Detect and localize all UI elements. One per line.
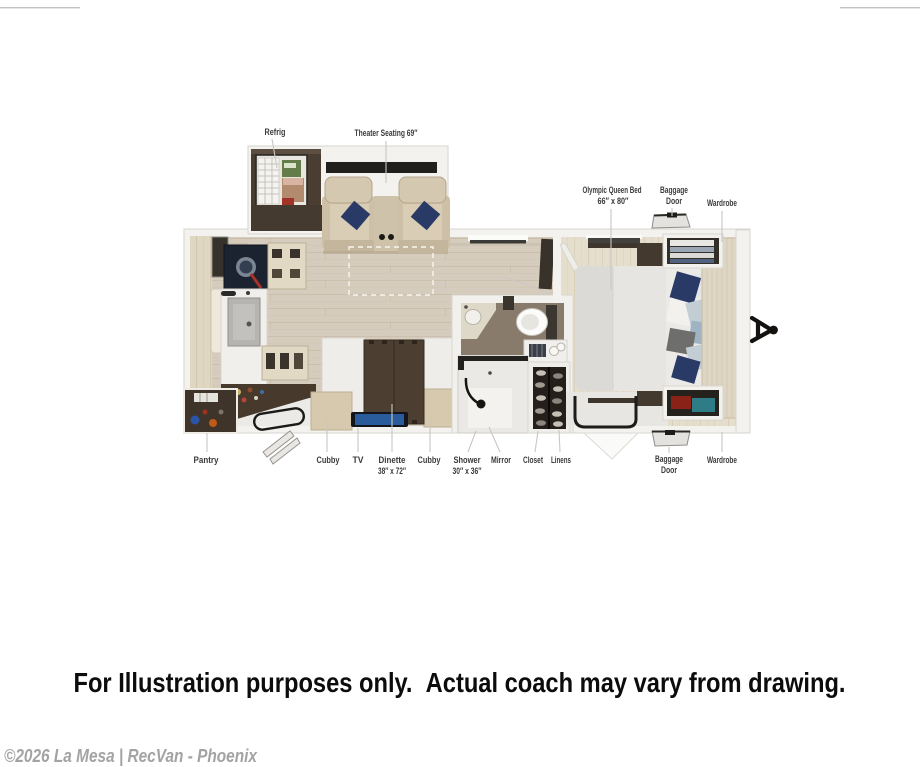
svg-text:©2026 La Mesa | RecVan - Phoen: ©2026 La Mesa | RecVan - Phoenix: [4, 746, 258, 766]
svg-text:Baggage: Baggage: [655, 454, 683, 464]
svg-text:Door: Door: [661, 465, 677, 475]
svg-text:38″ x 72″: 38″ x 72″: [378, 466, 406, 476]
svg-text:Cubby: Cubby: [418, 455, 441, 465]
svg-text:Mirror: Mirror: [491, 455, 511, 465]
svg-text:For Illustration purposes only: For Illustration purposes only. Actual c…: [74, 667, 846, 698]
svg-text:Door: Door: [666, 196, 682, 206]
svg-text:Wardrobe: Wardrobe: [707, 455, 737, 465]
svg-text:Olympic Queen Bed: Olympic Queen Bed: [583, 185, 642, 195]
svg-text:TV: TV: [353, 455, 364, 465]
svg-text:Dinette: Dinette: [379, 455, 406, 465]
svg-text:Baggage: Baggage: [660, 185, 688, 195]
svg-text:Cubby: Cubby: [317, 455, 340, 465]
svg-text:Wardrobe: Wardrobe: [707, 198, 737, 208]
svg-text:30″ x 36″: 30″ x 36″: [453, 466, 483, 476]
svg-text:Refrig: Refrig: [265, 127, 286, 137]
svg-text:Theater Seating 69″: Theater Seating 69″: [355, 128, 419, 138]
svg-text:Closet: Closet: [523, 455, 543, 465]
svg-text:Pantry: Pantry: [194, 455, 219, 465]
svg-text:Shower: Shower: [454, 455, 481, 465]
svg-text:Linens: Linens: [551, 455, 571, 465]
svg-text:66″ x 80″: 66″ x 80″: [598, 196, 630, 206]
